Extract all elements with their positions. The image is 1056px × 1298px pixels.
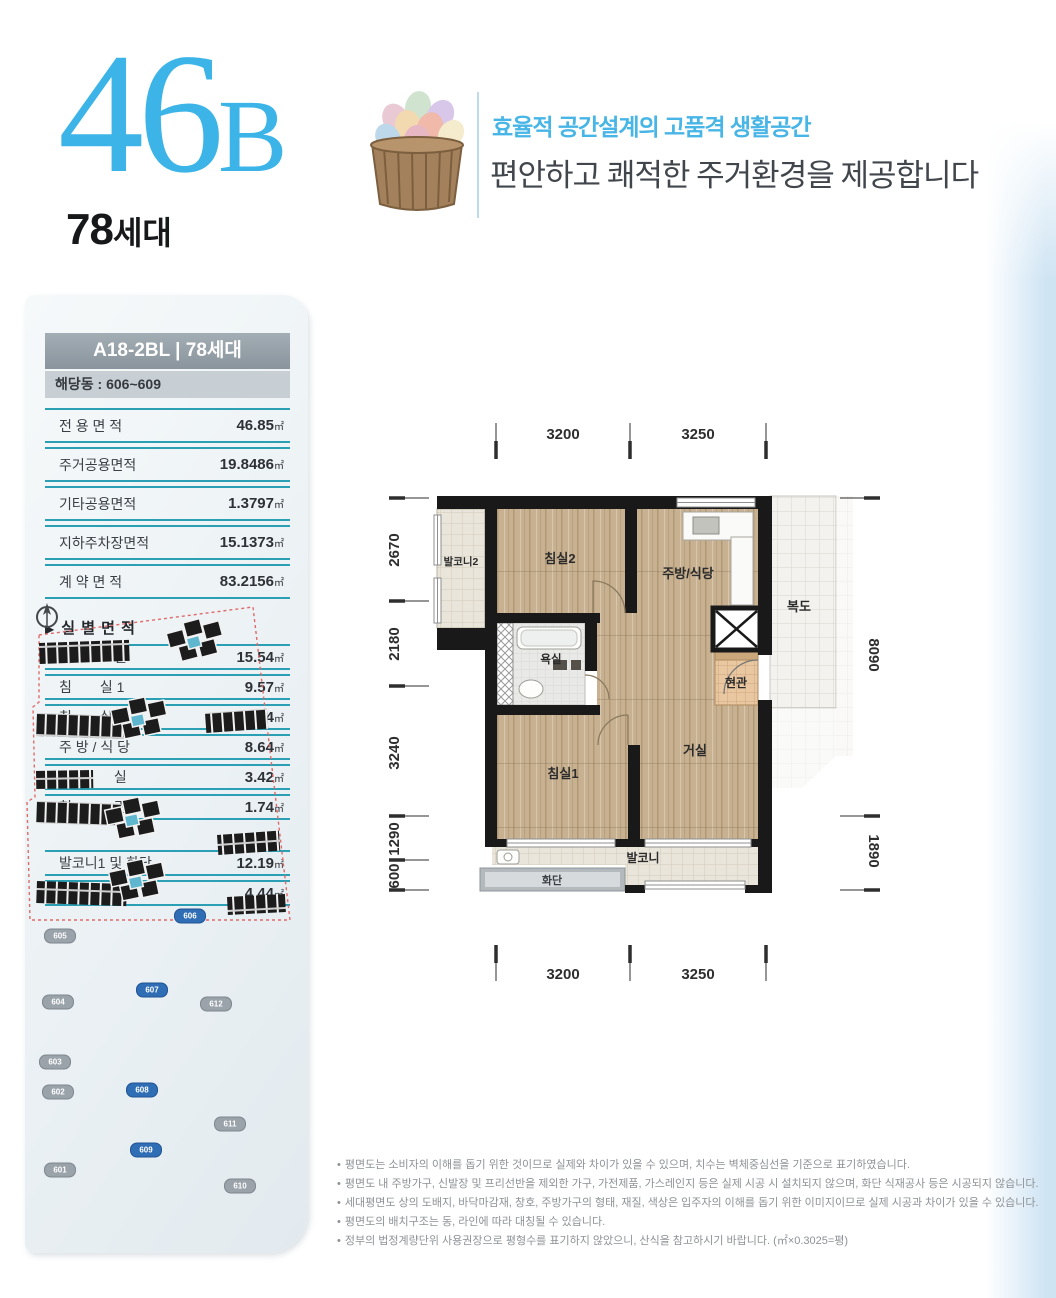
value-number: 15.1373: [220, 534, 274, 551]
value-number: 1.3797: [228, 495, 274, 512]
elevator-shaft: [713, 608, 760, 650]
row-label: 기타공용면적: [59, 494, 136, 514]
room-label-balcony2: 발코니2: [444, 555, 479, 568]
bullet-icon: •: [337, 1216, 341, 1228]
row-label: 지하주차장면적: [59, 533, 149, 553]
table-subtitle: 해당동 : 606~609: [45, 371, 290, 398]
dim-top-2: 3250: [681, 426, 714, 443]
washer: [497, 850, 519, 864]
dim-left-2: 2180: [386, 627, 403, 660]
bath-fixture: [571, 660, 581, 670]
balcony2-floor: [437, 509, 485, 628]
building-badge: 602: [42, 1085, 74, 1100]
footnote-item: •평면도는 소비자의 이해를 돕기 위한 것이므로 실제와 차이가 있을 수 있…: [337, 1156, 1005, 1175]
room-label-living: 거실: [683, 743, 707, 758]
bullet-icon: •: [337, 1178, 341, 1190]
table-row: 주거공용면적 19.8486㎡: [45, 447, 290, 482]
footnote-item: •세대평면도 상의 도배지, 바닥마감재, 창호, 주방가구의 형태, 재질, …: [337, 1194, 1005, 1213]
value-unit: ㎡: [274, 539, 284, 550]
table-row: 지하주차장면적 15.1373㎡: [45, 525, 290, 560]
building-badge: 605: [44, 929, 76, 944]
row-value: 1.3797㎡: [228, 495, 284, 512]
bullet-icon: •: [337, 1159, 341, 1171]
compass-icon: [37, 603, 57, 627]
value-unit: ㎡: [274, 578, 284, 589]
row-label: 주거공용면적: [59, 455, 136, 475]
dim-top-1: 3200: [546, 426, 579, 443]
building-badge: 601: [44, 1163, 76, 1178]
building-badge: 604: [42, 995, 74, 1010]
households-suffix: 세대: [113, 215, 172, 251]
footnote-item: •정부의 법정계량단위 사용권장으로 평형수를 표기하지 않았으니, 산식을 참…: [337, 1232, 1005, 1251]
room-label-bedroom1: 침실1: [547, 766, 578, 781]
building-badge: 610: [224, 1179, 256, 1194]
footnote-text: 정부의 법정계량단위 사용권장으로 평형수를 표기하지 않았으니, 산식을 참고…: [345, 1235, 848, 1247]
unit-code-number: 46: [58, 19, 218, 209]
building-badge-highlight: 609: [130, 1143, 162, 1158]
footnote-text: 세대평면도 상의 도배지, 바닥마감재, 창호, 주방가구의 형태, 재질, 색…: [345, 1197, 1039, 1209]
table-title: A18-2BL | 78세대: [45, 333, 290, 369]
households-count: 78세대: [66, 205, 172, 255]
room-label-bathroom: 욕실: [540, 652, 561, 666]
room-label-corridor: 복도: [787, 599, 811, 614]
dim-left-5: 600: [386, 863, 403, 888]
dim-left-4: 1290: [386, 822, 403, 855]
footnotes: •평면도는 소비자의 이해를 돕기 위한 것이므로 실제와 차이가 있을 수 있…: [337, 1156, 1005, 1251]
bathtub: [517, 627, 581, 649]
room-label-entrance: 현관: [725, 675, 747, 690]
table-row: 기타공용면적 1.3797㎡: [45, 486, 290, 521]
row-label: 전 용 면 적: [59, 416, 122, 436]
value-number: 19.8486: [220, 456, 274, 473]
table-row: 전 용 면 적 46.85㎡: [45, 408, 290, 443]
toilet: [519, 680, 543, 698]
footnote-text: 평면도는 소비자의 이해를 돕기 위한 것이므로 실제와 차이가 있을 수 있으…: [345, 1159, 910, 1171]
building-badge-highlight: 608: [126, 1083, 158, 1098]
room-label-kitchen: 주방/식당: [662, 566, 713, 581]
tagline-small: 효율적 공간설계의 고품격 생활공간: [492, 108, 811, 142]
brochure-page: 46B 78세대 효율적 공간설계의 고품격 생활공간 편안하고 쾌적한 주거환…: [0, 0, 1056, 1298]
unit-code: 46B: [58, 28, 287, 200]
value-unit: ㎡: [274, 500, 284, 511]
building-badge-highlight: 607: [136, 983, 168, 998]
bullet-icon: •: [337, 1197, 341, 1209]
value-number: 46.85: [236, 417, 274, 434]
room-label-balcony: 발코니: [626, 850, 659, 865]
area-rows: 전 용 면 적 46.85㎡ 주거공용면적 19.8486㎡ 기타공용면적 1.…: [45, 408, 290, 599]
value-unit: ㎡: [274, 422, 284, 433]
households-number: 78: [66, 205, 113, 254]
corridor-area: [770, 496, 853, 788]
building-badge: 611: [214, 1117, 246, 1132]
eggs-basket-image: [358, 82, 476, 223]
site-plan: [3, 593, 303, 958]
dim-right-1: 8090: [865, 638, 882, 671]
row-value: 83.2156㎡: [220, 573, 284, 590]
row-value: 46.85㎡: [236, 417, 284, 434]
unit-code-suffix: B: [218, 79, 287, 194]
footnote-text: 평면도 내 주방가구, 신발장 및 프리선반을 제외한 가구, 가전제품, 가스…: [345, 1178, 1039, 1190]
row-value: 15.1373㎡: [220, 534, 284, 551]
floor-plan: 침실2 주방/식당 복도 발코니2 욕실 현관 침실1 거실 발코니 화단: [385, 413, 885, 1000]
room-label-flowerbed: 화단: [542, 873, 562, 887]
row-label: 계 약 면 적: [59, 572, 122, 592]
building-badge-highlight: 606: [174, 909, 206, 924]
dim-left-3: 3240: [386, 736, 403, 769]
dim-right-2: 1890: [865, 834, 882, 867]
bullet-icon: •: [337, 1235, 341, 1247]
row-value: 19.8486㎡: [220, 456, 284, 473]
footnote-text: 평면도의 배치구조는 동, 라인에 따라 대칭될 수 있습니다.: [345, 1216, 605, 1228]
value-unit: ㎡: [274, 461, 284, 472]
right-blue-band: [986, 120, 1056, 1298]
duct-shaft: [497, 623, 513, 705]
footnote-item: •평면도 내 주방가구, 신발장 및 프리선반을 제외한 가구, 가전제품, 가…: [337, 1175, 1005, 1194]
header-divider: [477, 92, 479, 218]
dim-bottom-1: 3200: [546, 966, 579, 983]
building-badge: 603: [39, 1055, 71, 1070]
building-badge: 612: [200, 997, 232, 1012]
value-number: 83.2156: [220, 573, 274, 590]
room-label-bedroom2: 침실2: [544, 551, 575, 566]
footnote-item: •평면도의 배치구조는 동, 라인에 따라 대칭될 수 있습니다.: [337, 1213, 1005, 1232]
dim-left-1: 2670: [386, 533, 403, 566]
tagline-large: 편안하고 쾌적한 주거환경을 제공합니다: [490, 150, 978, 195]
dim-bottom-2: 3250: [681, 966, 714, 983]
